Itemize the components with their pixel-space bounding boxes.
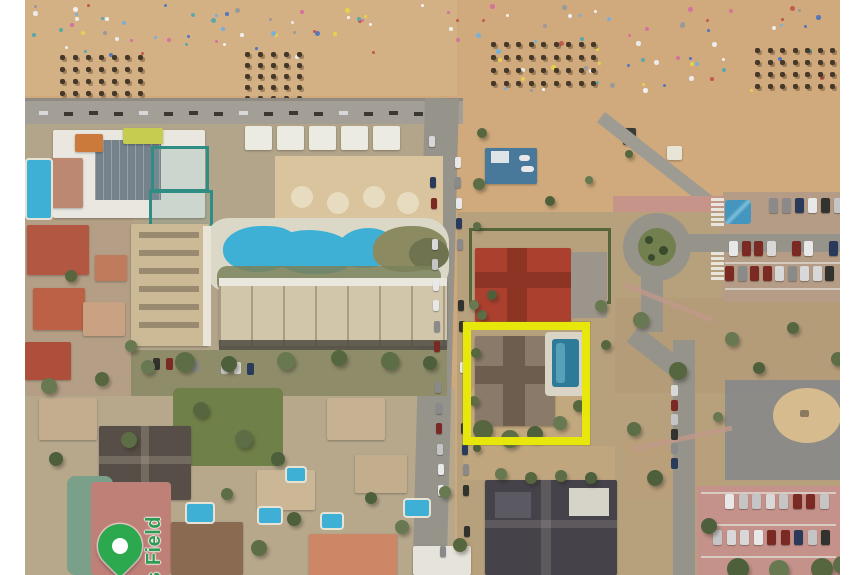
parked-car — [821, 198, 830, 213]
beach-umbrella-dot — [99, 55, 104, 60]
beachgoer-dot — [33, 11, 38, 16]
beach-umbrella-dot — [125, 91, 130, 96]
beachgoer-dot — [790, 6, 795, 11]
tree — [41, 378, 57, 394]
tree — [633, 312, 649, 328]
parked-vehicle — [114, 112, 123, 116]
tree — [769, 560, 789, 575]
beach-umbrella-dot — [818, 84, 823, 89]
beach-umbrella-dot — [805, 72, 810, 77]
beachgoer-dot — [87, 4, 90, 7]
beach-umbrella-dot — [579, 81, 584, 86]
beach-umbrella-dot — [73, 91, 78, 96]
parked-car — [808, 198, 817, 213]
beachgoer-dot — [347, 16, 350, 19]
tree — [121, 432, 137, 448]
beach-umbrella-dot — [554, 68, 559, 73]
beach-umbrella-dot — [271, 74, 276, 79]
beach-umbrella-dot — [125, 67, 130, 72]
parked-car — [438, 464, 444, 475]
beachgoer-dot — [167, 38, 171, 42]
beach-umbrella-dot — [73, 55, 78, 60]
beach-umbrella-dot — [818, 48, 823, 53]
beachgoer-dot — [449, 27, 453, 31]
screenshot-root: ts Field — [0, 0, 863, 575]
beach-umbrella-dot — [591, 68, 596, 73]
red-villa-gable — [507, 248, 527, 322]
beach-umbrella-dot — [755, 48, 760, 53]
beachgoer-dot — [372, 51, 375, 54]
beach-umbrella-dot — [830, 60, 835, 65]
beachgoer-dot — [235, 8, 240, 13]
beach-umbrella-dot — [793, 72, 798, 77]
beachgoer-dot — [521, 68, 525, 72]
beach-umbrella-dot — [830, 48, 835, 53]
beachgoer-dot — [75, 17, 79, 21]
tree — [65, 270, 77, 282]
beach-umbrella-dot — [491, 68, 496, 73]
tan-roof-house — [83, 302, 125, 336]
beachgoer-dot — [447, 11, 450, 14]
parked-vehicle — [89, 111, 98, 115]
beach-umbrella-dot — [755, 84, 760, 89]
terrace-umbrella — [363, 186, 385, 208]
beach-umbrella-dot — [245, 63, 250, 68]
beachgoer-dot — [482, 19, 485, 22]
swimming-pool — [25, 158, 53, 220]
beach-umbrella-dot — [768, 72, 773, 77]
parked-vehicle — [264, 112, 273, 116]
parked-car — [738, 266, 747, 281]
parked-car — [457, 239, 463, 250]
tree — [713, 412, 723, 422]
parked-car — [434, 341, 440, 352]
tree — [381, 352, 399, 370]
promenade-edge — [25, 98, 463, 101]
beach-umbrella-dot — [112, 55, 117, 60]
parked-car — [727, 530, 736, 545]
tree — [585, 472, 597, 484]
beach-umbrella-dot — [60, 67, 65, 72]
beachgoer-dot — [579, 14, 582, 17]
beachgoer-dot — [542, 88, 545, 91]
play-equipment — [800, 410, 809, 417]
parked-vehicle — [314, 112, 323, 116]
crosswalk-stripe — [711, 203, 724, 206]
beach-umbrella-dot — [86, 67, 91, 72]
tan-roof-house — [39, 398, 97, 440]
tree — [545, 196, 555, 206]
beach-umbrella-dot — [768, 60, 773, 65]
beach-umbrella-dot — [112, 67, 117, 72]
parked-vehicle — [414, 112, 423, 116]
parked-car — [739, 494, 748, 509]
parked-vehicle — [214, 112, 223, 116]
parked-car — [750, 266, 759, 281]
beachgoer-dot — [65, 46, 68, 49]
pin-inner-dot — [109, 535, 132, 558]
tree — [495, 468, 507, 480]
beach-umbrella-dot — [830, 72, 835, 77]
beach-umbrella-dot — [780, 48, 785, 53]
beachgoer-dot — [187, 35, 190, 38]
beach-umbrella-dot — [284, 63, 289, 68]
beach-umbrella-dot — [780, 84, 785, 89]
terrace-umbrella — [327, 192, 349, 214]
beachgoer-dot — [654, 60, 659, 65]
terrace-umbrella — [291, 186, 313, 208]
beach-umbrella-dot — [780, 60, 785, 65]
swimming-pool — [285, 466, 307, 483]
crosswalk-stripe — [711, 277, 724, 280]
tree — [473, 444, 481, 452]
beach-umbrella-dot — [138, 79, 143, 84]
parked-car — [437, 444, 443, 455]
orange-hut — [75, 134, 103, 152]
parked-car — [456, 218, 462, 229]
parked-car — [725, 266, 734, 281]
boat-white2 — [521, 166, 534, 172]
parked-car — [821, 530, 830, 545]
tree — [287, 512, 301, 526]
tree — [555, 470, 567, 482]
beach-umbrella-dot — [805, 60, 810, 65]
red-roof-house — [25, 342, 71, 380]
beach-umbrella-dot — [529, 55, 534, 60]
beach-umbrella-dot — [504, 55, 509, 60]
parked-vehicle — [339, 111, 348, 115]
tree — [193, 402, 209, 418]
parked-car — [455, 157, 461, 168]
crosswalk-stripe — [711, 252, 724, 255]
beach-umbrella-dot — [566, 42, 571, 47]
beach-umbrella-dot — [284, 85, 289, 90]
tree — [625, 150, 633, 158]
swimming-pool — [185, 502, 215, 524]
beach-umbrella-dot — [818, 72, 823, 77]
beach-umbrella-dot — [541, 55, 546, 60]
beach-umbrella-dot — [245, 74, 250, 79]
beachgoer-dot — [364, 15, 367, 18]
beachgoer-dot — [300, 10, 304, 14]
crosswalk-stripe — [711, 213, 724, 216]
parked-car — [825, 266, 834, 281]
beachgoer-dot — [534, 40, 537, 43]
parked-car — [433, 280, 439, 291]
property-highlight-box[interactable] — [463, 322, 590, 445]
beachgoer-dot — [421, 4, 424, 7]
parked-car — [464, 526, 470, 537]
tree — [469, 300, 479, 310]
parked-car — [247, 363, 254, 375]
dark-house-panel — [495, 492, 531, 518]
beach-umbrella-dot — [125, 55, 130, 60]
beach-umbrella-dot — [297, 85, 302, 90]
parking-stripe — [725, 288, 840, 290]
beach-umbrella-dot — [491, 42, 496, 47]
parked-car — [434, 321, 440, 332]
beach-umbrella-dot — [73, 79, 78, 84]
beach-umbrella-dot — [258, 85, 263, 90]
kiosk-roof — [491, 151, 509, 163]
beach-umbrella-dot — [112, 79, 117, 84]
beach-umbrella-dot — [554, 42, 559, 47]
beach-umbrella-dot — [529, 42, 534, 47]
beachgoer-dot — [688, 7, 693, 12]
tree — [787, 322, 799, 334]
beach-umbrella-dot — [579, 42, 584, 47]
swimming-pool — [403, 498, 431, 518]
beachgoer-dot — [333, 32, 337, 36]
parked-car — [729, 241, 738, 256]
tree — [477, 128, 487, 138]
beach-umbrella-dot — [516, 42, 521, 47]
tree — [221, 488, 233, 500]
beach-umbrella-dot — [793, 60, 798, 65]
beachgoer-dot — [70, 23, 74, 27]
beachgoer-dot — [215, 14, 218, 17]
parked-car — [671, 400, 678, 411]
parked-vehicle — [364, 112, 373, 116]
beachgoer-dot — [255, 47, 258, 50]
beachgoer-dot — [689, 76, 694, 81]
beach-umbrella-dot — [86, 91, 91, 96]
apartment-windows — [139, 232, 199, 338]
beachgoer-dot — [636, 41, 641, 46]
beachgoer-dot — [101, 17, 104, 20]
beach-umbrella-dot — [591, 55, 596, 60]
parked-car — [431, 198, 437, 209]
swimming-pool — [257, 506, 283, 525]
crosswalk-stripe — [711, 223, 724, 226]
dark-house-terrace — [569, 488, 609, 516]
beachgoer-dot — [271, 31, 276, 36]
tree — [525, 472, 537, 484]
tree — [95, 372, 109, 386]
beach-umbrella-dot — [258, 52, 263, 57]
parked-car — [781, 530, 790, 545]
beach-umbrella-dot — [579, 68, 584, 73]
beach-umbrella-dot — [780, 72, 785, 77]
beach-umbrella-dot — [125, 79, 130, 84]
beachgoer-dot — [610, 83, 615, 88]
parked-car — [740, 530, 749, 545]
beachgoer-dot — [798, 9, 801, 12]
roundabout-bush — [659, 246, 668, 255]
beach-umbrella-dot — [60, 55, 65, 60]
tree — [423, 356, 437, 370]
parked-car — [834, 198, 840, 213]
beach-umbrella-dot — [768, 84, 773, 89]
parked-car — [829, 241, 838, 256]
beach-umbrella-dot — [793, 84, 798, 89]
crosswalk-stripe — [711, 257, 724, 260]
brown-roof-house — [171, 522, 243, 575]
beach-umbrella-dot — [529, 68, 534, 73]
tree — [627, 422, 641, 436]
parked-vehicle — [39, 111, 48, 115]
satellite-map-image[interactable]: ts Field — [25, 0, 840, 575]
tree — [453, 538, 467, 552]
tree — [601, 340, 611, 350]
parked-car — [671, 443, 678, 454]
beachgoer-dot — [496, 49, 501, 54]
beach-umbrella-dot — [99, 67, 104, 72]
parked-car — [671, 458, 678, 469]
parked-car — [725, 494, 734, 509]
beachgoer-dot — [781, 18, 784, 21]
parked-vehicle — [139, 111, 148, 115]
villa-ridge — [99, 456, 191, 464]
beachgoer-dot — [645, 27, 649, 31]
tan-roof-house — [327, 398, 385, 440]
parked-car — [806, 494, 815, 509]
beach-umbrella-dot — [86, 79, 91, 84]
parked-car — [794, 530, 803, 545]
tree — [141, 360, 155, 374]
beachgoer-dot — [710, 77, 714, 81]
crosswalk-stripe — [711, 208, 724, 211]
parked-car — [752, 494, 761, 509]
beachgoer-dot — [506, 14, 509, 17]
parked-car — [788, 266, 797, 281]
beach-umbrella-dot — [491, 81, 496, 86]
tree — [277, 352, 295, 370]
parked-car — [742, 241, 751, 256]
beach-umbrella-dot — [566, 81, 571, 86]
beach-umbrella-dot — [566, 55, 571, 60]
tree — [251, 540, 267, 556]
tree — [49, 452, 63, 466]
beachgoer-dot — [596, 48, 599, 51]
beachgoer-dot — [221, 27, 225, 31]
parked-car — [429, 136, 435, 147]
beachgoer-dot — [225, 12, 229, 16]
canopy — [373, 126, 400, 150]
beach-umbrella-dot — [541, 68, 546, 73]
parked-car — [455, 177, 461, 188]
parked-car — [433, 300, 439, 311]
beach-umbrella-dot — [60, 91, 65, 96]
parked-car — [440, 546, 446, 557]
canopy — [309, 126, 336, 150]
beach-umbrella-dot — [271, 52, 276, 57]
red-roof-house — [33, 288, 85, 330]
townhouse-canopy-strip — [219, 278, 447, 286]
beach-umbrella-dot — [138, 55, 143, 60]
parked-car — [763, 266, 772, 281]
roundabout-island — [638, 228, 676, 266]
beachgoer-dot — [490, 4, 495, 9]
beach-umbrella-dot — [516, 55, 521, 60]
parked-car — [456, 198, 462, 209]
beach-umbrella-dot — [271, 85, 276, 90]
beach-umbrella-dot — [541, 81, 546, 86]
beachgoer-dot — [681, 22, 685, 26]
beach-umbrella-dot — [541, 42, 546, 47]
beachgoer-dot — [34, 5, 37, 8]
yellow-hut — [123, 128, 163, 144]
roundabout-bush — [645, 236, 653, 244]
parked-vehicle — [189, 111, 198, 115]
red-roof-house — [27, 225, 89, 275]
tree — [701, 518, 717, 534]
red-roof-house — [95, 255, 127, 281]
beach-umbrella-dot — [516, 81, 521, 86]
beachgoer-dot — [690, 62, 694, 66]
parked-car — [432, 239, 438, 250]
parked-car — [766, 494, 775, 509]
parking-stripe — [701, 524, 836, 526]
beach-umbrella-dot — [491, 55, 496, 60]
tree — [473, 222, 481, 230]
beach-umbrella-dot — [830, 84, 835, 89]
beach-umbrella-dot — [818, 60, 823, 65]
beach-umbrella-dot — [579, 55, 584, 60]
tree — [331, 350, 347, 366]
beach-umbrella-dot — [245, 85, 250, 90]
tree — [271, 452, 285, 466]
beachgoer-dot — [559, 41, 564, 46]
field-label: ts Field — [143, 516, 166, 575]
beach-umbrella-dot — [73, 67, 78, 72]
parked-car — [671, 429, 678, 440]
pink-roof-house — [51, 158, 83, 208]
beachgoer-dot — [313, 30, 316, 33]
swimming-pool — [320, 512, 344, 530]
beach-umbrella-dot — [591, 81, 596, 86]
beach-umbrella-dot — [284, 52, 289, 57]
tree — [669, 362, 687, 380]
crosswalk-stripe — [711, 198, 724, 201]
townhouse-row — [219, 280, 447, 346]
parked-car — [436, 403, 442, 414]
parked-car — [436, 423, 442, 434]
parked-car — [804, 241, 813, 256]
tan-roof-house — [355, 455, 407, 493]
salmon-roof-house — [309, 534, 397, 575]
parked-car — [782, 198, 791, 213]
parked-car — [769, 198, 778, 213]
parked-car — [463, 485, 469, 496]
beachgoer-dot — [643, 88, 648, 93]
tree — [473, 178, 485, 190]
beachgoer-dot — [130, 39, 133, 42]
parked-vehicle — [64, 112, 73, 116]
blue-shade-structure — [725, 200, 751, 224]
parked-car — [435, 382, 441, 393]
parked-car — [754, 241, 763, 256]
parked-car — [430, 177, 436, 188]
beachgoer-dot — [689, 57, 692, 60]
parked-car — [800, 266, 809, 281]
beach-umbrella-dot — [258, 63, 263, 68]
crosswalk-stripe — [711, 218, 724, 221]
parked-car — [458, 300, 464, 311]
tree — [831, 352, 840, 366]
beach-umbrella-dot — [297, 52, 302, 57]
tree — [439, 486, 451, 498]
parked-vehicle — [389, 111, 398, 115]
beach-umbrella-dot — [554, 55, 559, 60]
parked-car — [166, 358, 173, 370]
parked-vehicle — [289, 111, 298, 115]
parking-stripe — [701, 556, 836, 558]
beach-umbrella-dot — [529, 81, 534, 86]
beach-umbrella-dot — [99, 91, 104, 96]
parked-vehicle — [164, 112, 173, 116]
beach-umbrella-dot — [504, 81, 509, 86]
